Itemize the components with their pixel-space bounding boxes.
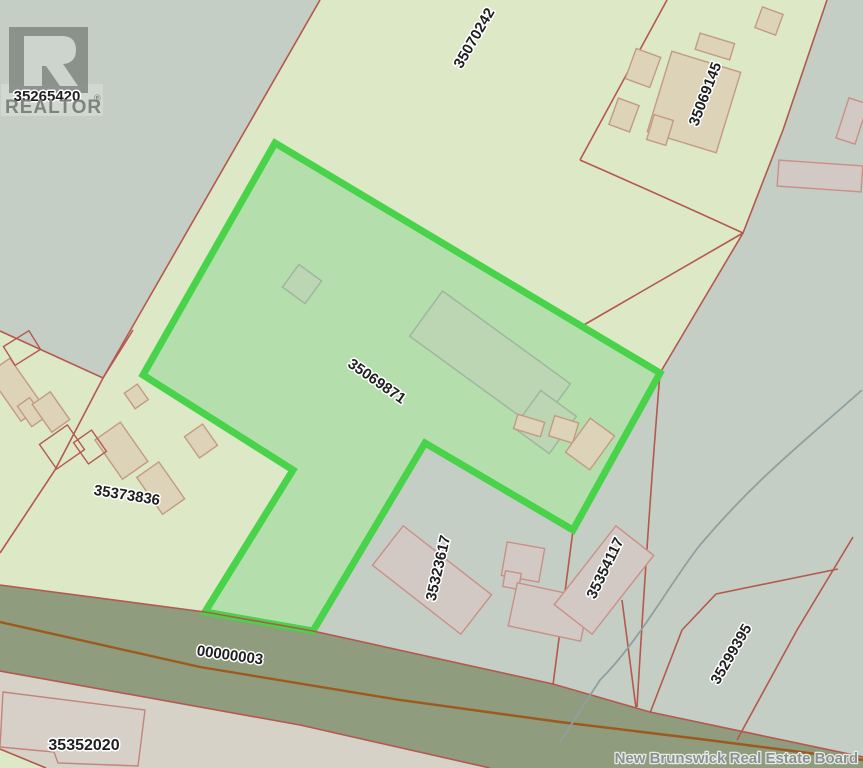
registered-mark-icon: ® [94, 93, 101, 103]
parcel-map: 35070242 35069145 35069871 35373836 3532… [0, 0, 863, 768]
board-watermark: New Brunswick Real Estate Board [615, 750, 858, 767]
realtor-logo: 35265420 REALTOR ® [1, 27, 103, 118]
realtor-wordmark: REALTOR [5, 97, 102, 118]
pid-label-southwest: 35352020 [48, 737, 119, 754]
